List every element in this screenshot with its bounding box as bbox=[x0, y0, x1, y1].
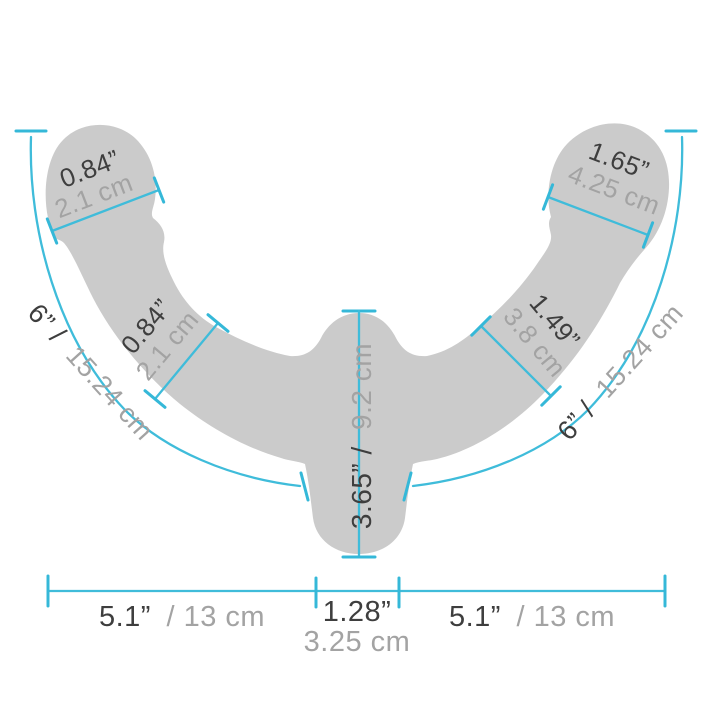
label-bottom-left-inches: 5.1” bbox=[99, 601, 151, 633]
label-length-right-cm: 15.24 cm bbox=[590, 298, 689, 404]
label-bottom-right-inches: 5.1” bbox=[449, 601, 501, 633]
label-bottom-right-cm: / 13 cm bbox=[516, 601, 615, 633]
dim-length-left-tick-end bbox=[301, 473, 308, 500]
label-bottom-center-inches: 1.28” bbox=[323, 596, 392, 628]
dim-shaft-left-tick-end bbox=[145, 391, 165, 408]
dim-bottom: 5.1” / 13 cm 1.28” 3.25 cm 5.1” / 13 cm bbox=[48, 576, 665, 658]
label-length-right-inches: 6” / bbox=[552, 395, 602, 446]
label-bottom-left: 5.1” / 13 cm bbox=[99, 601, 265, 633]
label-center-height-inches: 3.65” / bbox=[346, 446, 377, 529]
label-bottom-center-cm: 3.25 cm bbox=[304, 626, 411, 658]
label-center-height-cm: 9.2 cm bbox=[346, 343, 377, 430]
label-length-left-inches: 6” / bbox=[22, 298, 72, 349]
dimension-diagram: 0.84” 2.1 cm 1.65” 4.25 cm 0.84” 2.1 cm … bbox=[0, 0, 713, 713]
label-bottom-right: 5.1” / 13 cm bbox=[449, 601, 615, 633]
label-bottom-left-cm: / 13 cm bbox=[166, 601, 265, 633]
